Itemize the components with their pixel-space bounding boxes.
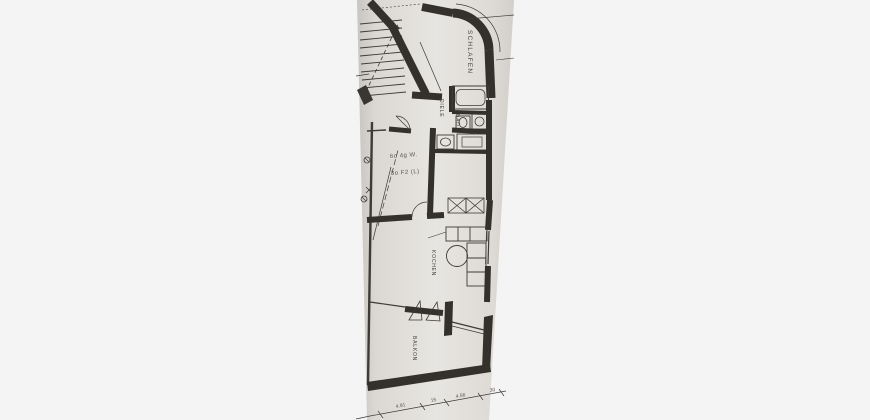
room-label-schlafen: SCHLAFEN xyxy=(466,30,473,74)
room-label-balkon: BALKON xyxy=(411,336,417,361)
room-label-diele: DIELE xyxy=(438,99,444,117)
dimension-value: 30 xyxy=(489,387,496,394)
floor-plan-drawing: SCHLAFEN DIELE BAD KOCHEN BALKON 6o 4g W… xyxy=(0,0,870,420)
floor-plan-photo: SCHLAFEN DIELE BAD KOCHEN BALKON 6o 4g W… xyxy=(0,0,870,420)
room-label-bad: BAD xyxy=(454,114,460,127)
wall-pillar xyxy=(444,301,453,336)
page-background: SCHLAFEN DIELE BAD KOCHEN BALKON 6o 4g W… xyxy=(0,0,870,420)
room-label-kochen: KOCHEN xyxy=(430,250,436,276)
